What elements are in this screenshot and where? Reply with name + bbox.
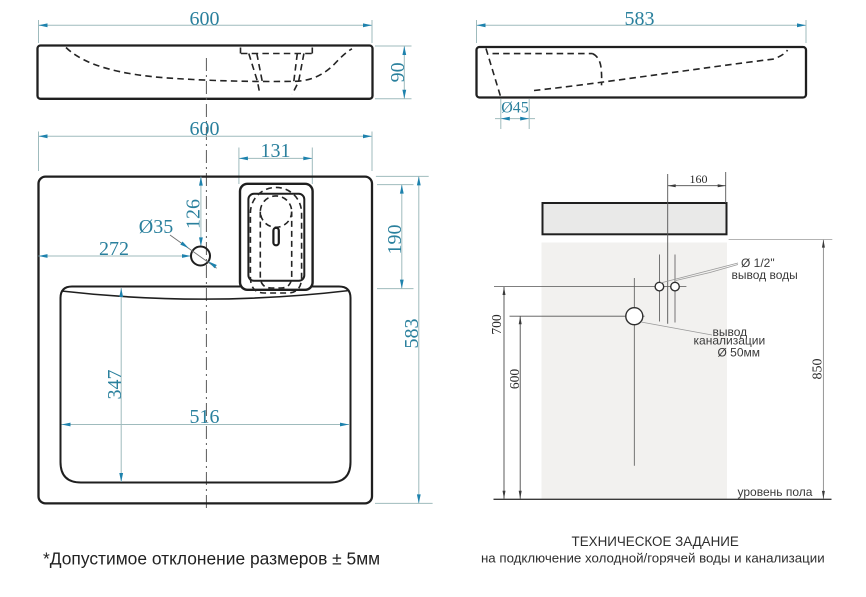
svg-text:850: 850: [810, 359, 825, 380]
svg-text:вывод воды: вывод воды: [732, 268, 798, 282]
svg-text:516: 516: [190, 406, 220, 428]
svg-text:131: 131: [261, 140, 291, 162]
svg-text:583: 583: [625, 8, 655, 30]
svg-text:700: 700: [489, 314, 504, 335]
svg-text:160: 160: [690, 172, 708, 186]
svg-text:583: 583: [401, 319, 423, 349]
svg-text:*Допустимое отклонение размеро: *Допустимое отклонение размеров ± 5мм: [43, 549, 380, 569]
svg-text:на подключение холодной/горяче: на подключение холодной/горячей воды и к…: [481, 551, 825, 566]
svg-text:272: 272: [99, 238, 129, 260]
svg-text:Ø45: Ø45: [501, 100, 529, 117]
svg-text:Ø35: Ø35: [139, 216, 173, 238]
svg-text:90: 90: [387, 62, 409, 82]
svg-text:600: 600: [190, 118, 220, 140]
svg-text:уровень пола: уровень пола: [738, 485, 813, 499]
svg-text:600: 600: [507, 369, 522, 390]
svg-text:600: 600: [190, 8, 220, 30]
svg-text:Ø 50мм: Ø 50мм: [718, 346, 761, 360]
svg-text:ТЕХНИЧЕСКОЕ ЗАДАНИЕ: ТЕХНИЧЕСКОЕ ЗАДАНИЕ: [572, 534, 739, 549]
svg-text:190: 190: [384, 225, 406, 255]
svg-text:126: 126: [183, 199, 205, 229]
svg-text:347: 347: [104, 370, 126, 400]
